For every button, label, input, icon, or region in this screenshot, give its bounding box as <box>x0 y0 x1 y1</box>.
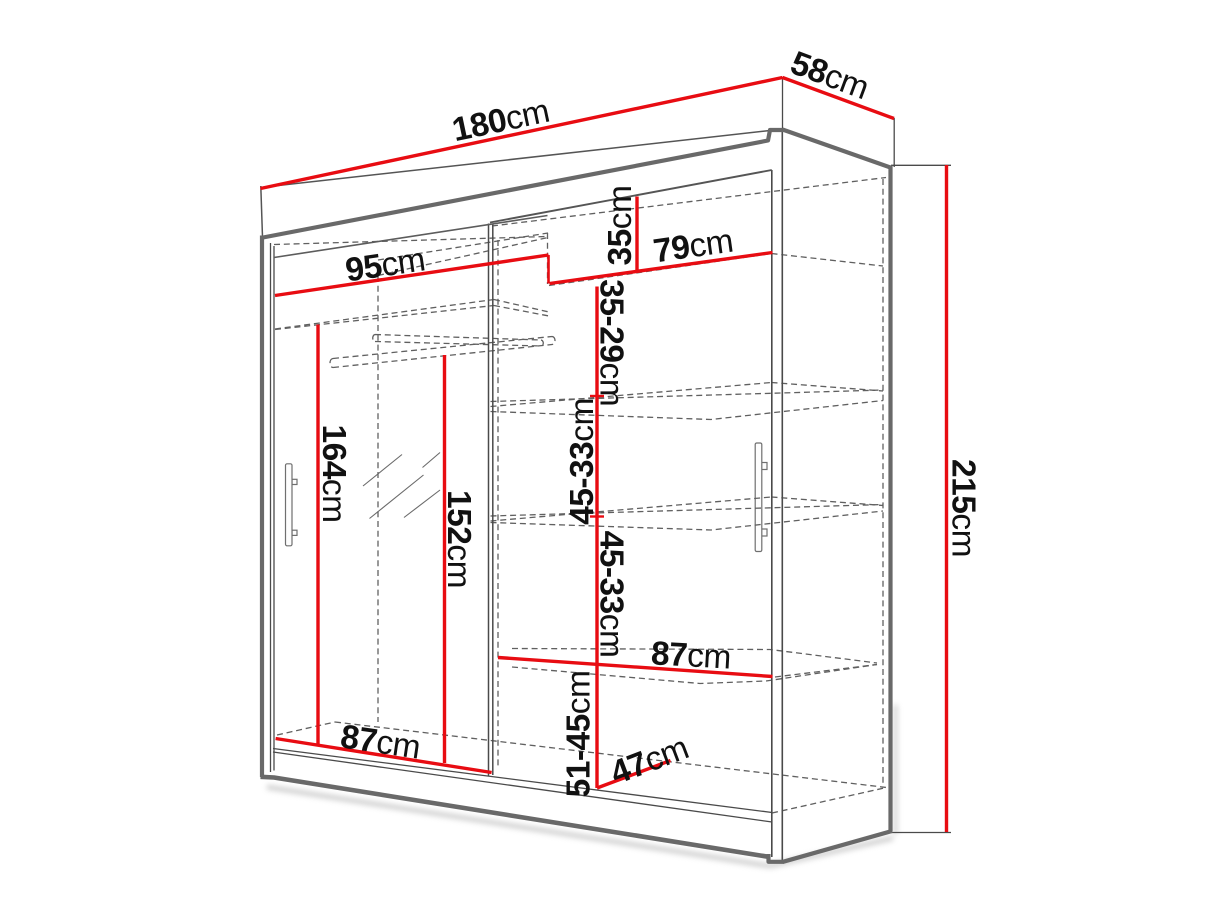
svg-text:45-33cm: 45-33cm <box>564 398 601 525</box>
svg-text:35-29cm: 35-29cm <box>592 279 629 406</box>
svg-text:164cm: 164cm <box>315 424 352 522</box>
svg-text:152cm: 152cm <box>440 490 477 588</box>
svg-text:215cm: 215cm <box>945 459 982 557</box>
svg-text:87cm: 87cm <box>650 635 732 676</box>
svg-text:51-45cm: 51-45cm <box>561 671 598 798</box>
svg-text:45-33cm: 45-33cm <box>592 531 629 658</box>
svg-text:35cm: 35cm <box>602 186 639 266</box>
